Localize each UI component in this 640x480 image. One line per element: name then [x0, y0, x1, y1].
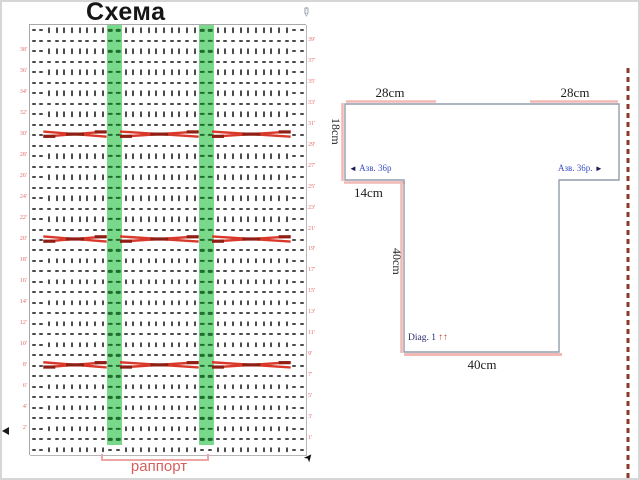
purl-symbol [154, 438, 158, 440]
purl-symbol [223, 208, 227, 210]
purl-symbol [39, 208, 43, 210]
purl-symbol [32, 354, 36, 356]
purl-symbol [62, 270, 66, 272]
purl-symbol [131, 312, 135, 314]
purl-symbol [200, 302, 205, 304]
purl-symbol [78, 166, 82, 168]
purl-symbol [177, 375, 181, 377]
purl-symbol [93, 229, 97, 231]
purl-symbol [162, 375, 166, 377]
purl-symbol [108, 102, 113, 104]
purl-symbol [39, 386, 43, 388]
knit-symbol [79, 258, 81, 264]
purl-symbol [154, 249, 158, 251]
purl-symbol [262, 375, 266, 377]
knit-symbol [125, 69, 127, 75]
purl-symbol [292, 61, 296, 63]
purl-symbol [239, 103, 243, 105]
purl-symbol [70, 312, 74, 314]
knit-symbol [148, 48, 150, 54]
purl-symbol [292, 208, 296, 210]
knit-symbol [102, 216, 104, 222]
purl-symbol [223, 375, 227, 377]
knit-symbol [263, 300, 265, 306]
up-arrows-icon: ↑↑ [438, 333, 448, 343]
purl-symbol [131, 145, 135, 147]
knit-symbol [171, 69, 173, 75]
purl-symbol [116, 144, 121, 146]
knit-symbol [224, 405, 226, 411]
knit-symbol [79, 69, 81, 75]
purl-symbol [116, 312, 121, 314]
purl-symbol [39, 354, 43, 356]
purl-symbol [131, 103, 135, 105]
purl-symbol [131, 270, 135, 272]
purl-symbol [78, 396, 82, 398]
purl-symbol [139, 145, 143, 147]
purl-symbol [200, 29, 205, 31]
knit-symbol [247, 300, 249, 306]
purl-symbol [193, 40, 197, 42]
purl-symbol [300, 113, 304, 115]
purl-symbol [116, 260, 121, 262]
purl-symbol [101, 312, 105, 314]
knit-symbol [270, 342, 272, 348]
purl-symbol [93, 438, 97, 440]
purl-symbol [93, 396, 97, 398]
purl-symbol [239, 61, 243, 63]
purl-symbol [162, 187, 166, 189]
purl-symbol [292, 365, 296, 367]
purl-symbol [170, 438, 174, 440]
knit-symbol [102, 27, 104, 33]
purl-symbol [124, 229, 128, 231]
knit-symbol [240, 111, 242, 117]
purl-symbol [62, 208, 66, 210]
purl-symbol [139, 291, 143, 293]
knit-symbol [148, 279, 150, 285]
knit-symbol [79, 48, 81, 54]
row-number: 19' [308, 246, 322, 252]
row-number: 6' [15, 383, 27, 389]
purl-symbol [32, 113, 36, 115]
purl-symbol [101, 229, 105, 231]
knit-symbol [270, 447, 272, 453]
purl-symbol [108, 186, 113, 188]
knit-symbol [217, 342, 219, 348]
purl-symbol [269, 375, 273, 377]
purl-symbol [200, 102, 205, 104]
purl-symbol [231, 208, 235, 210]
purl-symbol [101, 333, 105, 335]
purl-symbol [193, 333, 197, 335]
purl-symbol [139, 396, 143, 398]
purl-symbol [55, 61, 59, 63]
knit-symbol [278, 195, 280, 201]
knit-symbol [102, 342, 104, 348]
purl-symbol [246, 396, 250, 398]
purl-symbol [147, 166, 151, 168]
purl-symbol [124, 166, 128, 168]
purl-symbol [300, 344, 304, 346]
purl-symbol [193, 438, 197, 440]
knit-symbol [232, 405, 234, 411]
knit-symbol [132, 90, 134, 96]
knit-symbol [163, 69, 165, 75]
purl-symbol [170, 61, 174, 63]
knit-symbol [247, 258, 249, 264]
purl-symbol [300, 407, 304, 409]
purl-symbol [55, 249, 59, 251]
knit-symbol [125, 153, 127, 159]
knit-symbol [79, 426, 81, 432]
purl-symbol [223, 124, 227, 126]
knit-symbol [102, 279, 104, 285]
purl-symbol [62, 396, 66, 398]
purl-symbol [55, 187, 59, 189]
purl-symbol [200, 144, 205, 146]
purl-symbol [55, 82, 59, 84]
purl-symbol [47, 61, 51, 63]
purl-symbol [32, 166, 36, 168]
purl-symbol [116, 302, 121, 304]
purl-symbol [124, 61, 128, 63]
purl-symbol [193, 166, 197, 168]
knit-symbol [263, 174, 265, 180]
purl-symbol [39, 155, 43, 157]
purl-symbol [62, 145, 66, 147]
knit-symbol [194, 447, 196, 453]
knit-symbol [270, 279, 272, 285]
purl-symbol [177, 333, 181, 335]
knit-symbol [232, 90, 234, 96]
knit-symbol [171, 384, 173, 390]
purl-symbol [239, 249, 243, 251]
purl-symbol [269, 354, 273, 356]
purl-symbol [139, 61, 143, 63]
purl-symbol [39, 438, 43, 440]
knit-symbol [171, 48, 173, 54]
purl-symbol [116, 354, 121, 356]
purl-symbol [292, 124, 296, 126]
knit-symbol [194, 69, 196, 75]
purl-symbol [223, 333, 227, 335]
purl-symbol [185, 229, 189, 231]
knit-symbol [163, 258, 165, 264]
purl-symbol [131, 396, 135, 398]
purl-symbol [108, 417, 113, 419]
knit-symbol [278, 426, 280, 432]
purl-symbol [108, 228, 113, 230]
knit-symbol [48, 279, 50, 285]
knit-symbol [263, 405, 265, 411]
purl-symbol [200, 197, 205, 199]
knit-symbol [178, 153, 180, 159]
knit-symbol [132, 300, 134, 306]
purl-symbol [116, 375, 121, 377]
knit-symbol [48, 27, 50, 33]
row-number: 10' [15, 341, 27, 347]
purl-symbol [292, 344, 296, 346]
purl-symbol [85, 124, 89, 126]
knit-symbol [178, 27, 180, 33]
purl-symbol [32, 302, 36, 304]
knit-symbol [278, 447, 280, 453]
knit-symbol [56, 153, 58, 159]
knit-symbol [178, 111, 180, 117]
purl-symbol [277, 249, 281, 251]
knit-symbol [48, 174, 50, 180]
purl-symbol [208, 71, 213, 73]
purl-symbol [193, 187, 197, 189]
purl-symbol [231, 145, 235, 147]
purl-symbol [200, 113, 205, 115]
knit-symbol [125, 90, 127, 96]
purl-symbol [47, 249, 51, 251]
knit-symbol [232, 69, 234, 75]
purl-symbol [70, 333, 74, 335]
purl-symbol [254, 40, 258, 42]
knit-symbol [186, 174, 188, 180]
purl-symbol [108, 260, 113, 262]
left-note-text: Азв. 36р [359, 163, 391, 173]
purl-symbol [139, 166, 143, 168]
purl-symbol [246, 124, 250, 126]
purl-symbol [185, 166, 189, 168]
purl-symbol [55, 145, 59, 147]
purl-symbol [200, 61, 205, 63]
knit-symbol [263, 384, 265, 390]
purl-symbol [32, 145, 36, 147]
purl-symbol [177, 417, 181, 419]
purl-symbol [246, 145, 250, 147]
purl-symbol [269, 61, 273, 63]
purl-symbol [116, 333, 121, 335]
purl-symbol [277, 417, 281, 419]
purl-symbol [116, 123, 121, 125]
purl-symbol [32, 449, 36, 451]
knit-symbol [178, 342, 180, 348]
row-number: 22' [15, 215, 27, 221]
knit-symbol [232, 342, 234, 348]
purl-symbol [147, 417, 151, 419]
purl-symbol [39, 249, 43, 251]
purl-symbol [208, 144, 213, 146]
purl-symbol [254, 312, 258, 314]
purl-symbol [131, 61, 135, 63]
purl-symbol [154, 270, 158, 272]
knit-symbol [263, 321, 265, 327]
knit-symbol [286, 153, 288, 159]
purl-symbol [300, 323, 304, 325]
purl-symbol [208, 29, 213, 31]
knit-symbol [125, 300, 127, 306]
purl-symbol [116, 438, 121, 440]
purl-symbol [285, 438, 289, 440]
purl-symbol [101, 291, 105, 293]
purl-symbol [55, 40, 59, 42]
purl-symbol [124, 145, 128, 147]
purl-symbol [139, 103, 143, 105]
knit-symbol [148, 69, 150, 75]
knit-symbol [71, 90, 73, 96]
knit-symbol [56, 48, 58, 54]
knit-symbol [79, 447, 81, 453]
knit-symbol [270, 321, 272, 327]
knit-symbol [178, 300, 180, 306]
knit-symbol [155, 300, 157, 306]
purl-symbol [70, 249, 74, 251]
knit-symbol [86, 27, 88, 33]
purl-symbol [200, 92, 205, 94]
purl-symbol [170, 375, 174, 377]
purl-symbol [131, 229, 135, 231]
purl-symbol [277, 396, 281, 398]
knit-symbol [56, 447, 58, 453]
purl-symbol [32, 187, 36, 189]
purl-symbol [162, 270, 166, 272]
knit-symbol [247, 447, 249, 453]
purl-symbol [131, 291, 135, 293]
knit-symbol [247, 27, 249, 33]
knit-symbol [194, 279, 196, 285]
purl-symbol [70, 354, 74, 356]
purl-symbol [162, 249, 166, 251]
purl-symbol [70, 270, 74, 272]
purl-symbol [147, 145, 151, 147]
purl-symbol [116, 239, 121, 241]
row-number: 34' [15, 89, 27, 95]
purl-symbol [208, 323, 213, 325]
purl-symbol [292, 29, 296, 31]
purl-symbol [70, 103, 74, 105]
purl-symbol [277, 312, 281, 314]
purl-symbol [254, 145, 258, 147]
purl-symbol [292, 145, 296, 147]
purl-symbol [116, 113, 121, 115]
purl-symbol [131, 166, 135, 168]
purl-symbol [239, 396, 243, 398]
knit-symbol [217, 300, 219, 306]
purl-symbol [200, 176, 205, 178]
knit-symbol [263, 258, 265, 264]
purl-symbol [32, 176, 36, 178]
knit-symbol [186, 69, 188, 75]
purl-symbol [101, 187, 105, 189]
knit-symbol [240, 195, 242, 201]
purl-symbol [208, 165, 213, 167]
purl-symbol [85, 40, 89, 42]
purl-symbol [39, 291, 43, 293]
knit-symbol [171, 300, 173, 306]
purl-symbol [216, 396, 220, 398]
purl-symbol [147, 103, 151, 105]
purl-symbol [85, 145, 89, 147]
knit-symbol [255, 384, 257, 390]
purl-symbol [47, 187, 51, 189]
knit-symbol [171, 195, 173, 201]
purl-symbol [32, 218, 36, 220]
knit-symbol [86, 300, 88, 306]
purl-symbol [300, 166, 304, 168]
knit-symbol [278, 321, 280, 327]
purl-symbol [246, 166, 250, 168]
knit-symbol [94, 48, 96, 54]
purl-symbol [254, 291, 258, 293]
purl-symbol [47, 291, 51, 293]
purl-symbol [200, 323, 205, 325]
purl-symbol [239, 270, 243, 272]
knit-symbol [217, 111, 219, 117]
knit-symbol [263, 426, 265, 432]
knit-symbol [86, 258, 88, 264]
purl-symbol [70, 124, 74, 126]
knit-symbol [132, 447, 134, 453]
purl-symbol [78, 354, 82, 356]
knit-symbol [86, 426, 88, 432]
purl-symbol [39, 449, 43, 451]
knit-symbol [125, 384, 127, 390]
purl-symbol [93, 312, 97, 314]
knit-symbol [132, 174, 134, 180]
purl-symbol [208, 270, 213, 272]
purl-symbol [162, 103, 166, 105]
purl-symbol [177, 270, 181, 272]
purl-symbol [108, 407, 113, 409]
purl-symbol [32, 417, 36, 419]
knit-symbol [255, 48, 257, 54]
purl-symbol [154, 417, 158, 419]
knit-symbol [263, 48, 265, 54]
purl-symbol [108, 176, 113, 178]
purl-symbol [208, 438, 213, 440]
knit-symbol [148, 90, 150, 96]
knit-symbol [224, 153, 226, 159]
knit-symbol [186, 111, 188, 117]
purl-symbol [55, 396, 59, 398]
purl-symbol [32, 92, 36, 94]
knit-symbol [217, 174, 219, 180]
purl-symbol [85, 187, 89, 189]
purl-symbol [300, 239, 304, 241]
purl-symbol [85, 166, 89, 168]
purl-symbol [170, 333, 174, 335]
purl-symbol [116, 82, 121, 84]
knit-symbol [148, 321, 150, 327]
purl-symbol [62, 249, 66, 251]
purl-symbol [124, 333, 128, 335]
purl-symbol [300, 375, 304, 377]
purl-symbol [262, 270, 266, 272]
knit-symbol [247, 384, 249, 390]
purl-symbol [162, 291, 166, 293]
purl-symbol [147, 208, 151, 210]
purl-symbol [124, 40, 128, 42]
purl-symbol [139, 333, 143, 335]
knit-symbol [56, 69, 58, 75]
purl-symbol [93, 61, 97, 63]
purl-symbol [300, 92, 304, 94]
purl-symbol [262, 166, 266, 168]
purl-symbol [300, 187, 304, 189]
purl-symbol [55, 103, 59, 105]
knit-symbol [255, 321, 257, 327]
knit-symbol [270, 48, 272, 54]
purl-symbol [85, 249, 89, 251]
knit-symbol [263, 90, 265, 96]
knit-symbol [286, 405, 288, 411]
knit-symbol [224, 447, 226, 453]
